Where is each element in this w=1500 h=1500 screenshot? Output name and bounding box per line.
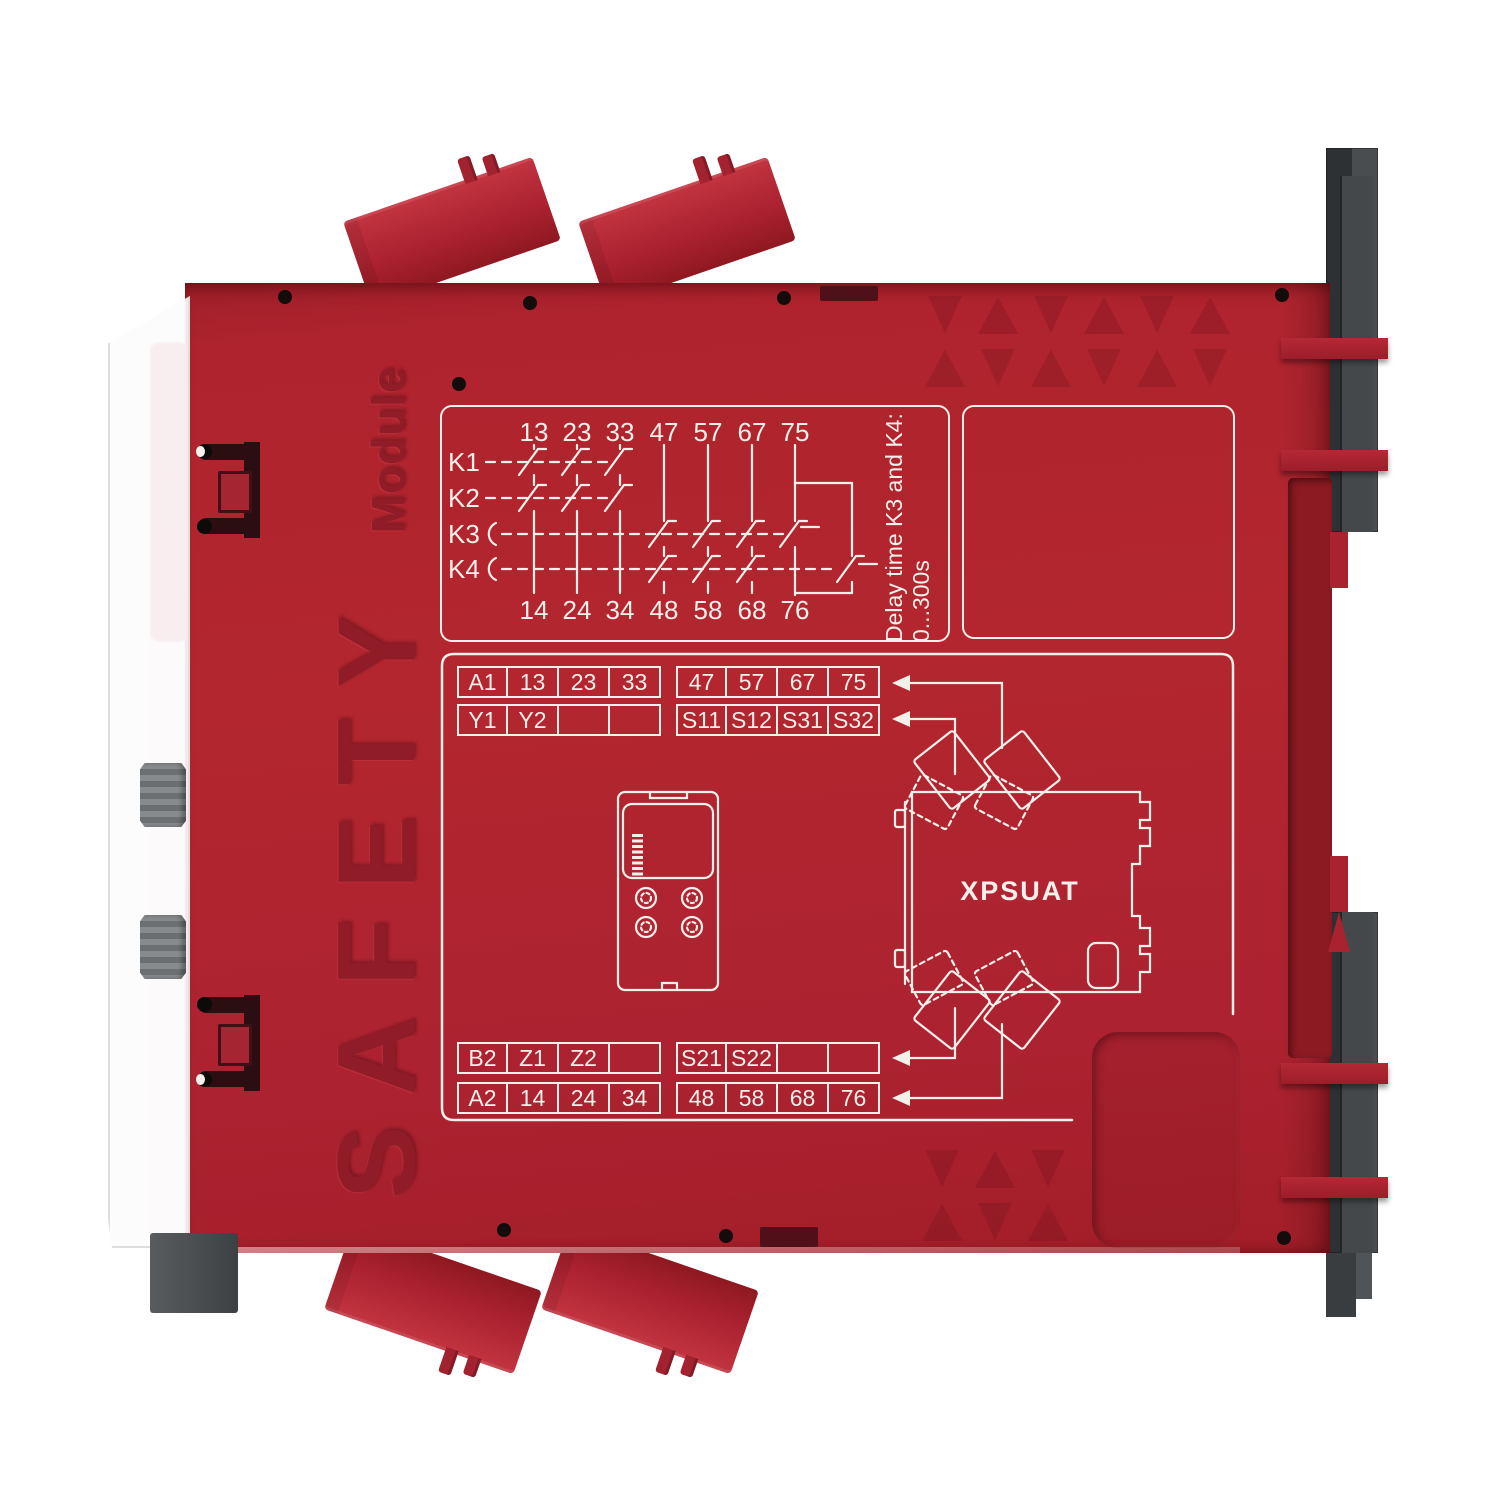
terminal-cell: [610, 1042, 661, 1074]
schematic-terminal: 57: [685, 419, 731, 445]
din-clip-foot-face: [1356, 1253, 1372, 1299]
latch-button: [218, 471, 252, 513]
terminal-cell: 75: [829, 666, 880, 698]
cover-latch: [198, 440, 262, 540]
table-row: S11 S12 S31 S32: [676, 704, 880, 736]
vent-slot: [820, 286, 878, 301]
table-row: B2 Z1 Z2: [457, 1042, 661, 1074]
screw-hole: [523, 296, 537, 310]
terminal-cell: Y1: [457, 704, 508, 736]
schematic-terminal: 13: [511, 419, 557, 445]
terminal-pin: [438, 1347, 459, 1376]
terminal-cell: Y2: [508, 704, 559, 736]
terminal-cell: 47: [676, 666, 727, 698]
latch-button: [218, 1024, 252, 1066]
terminal-cell: A2: [457, 1082, 508, 1114]
cover-latch: [198, 993, 262, 1093]
terminal-cell: 34: [610, 1082, 661, 1114]
terminal-table-bottom-right: S21 S22 48 58 68 76: [676, 1042, 880, 1114]
schematic-terminal: 23: [554, 419, 600, 445]
terminal-cell: 58: [727, 1082, 778, 1114]
embossed-module-text: Module: [361, 367, 415, 534]
clip-retainer-tab: [1281, 338, 1388, 359]
schematic-terminal: 34: [597, 597, 643, 623]
terminal-cell: [610, 704, 661, 736]
housing-step: [1330, 856, 1348, 912]
housing-step: [1330, 532, 1348, 588]
vent-slot: [760, 1227, 818, 1247]
terminal-pin: [680, 1355, 699, 1378]
relay-label: K2: [448, 485, 492, 511]
model-label: XPSUAT: [950, 876, 1090, 907]
gray-base-part: [150, 1233, 238, 1313]
delay-note-line1: Delay time K3 and K4:: [881, 404, 908, 642]
terminal-cell: A1: [457, 666, 508, 698]
schematic-terminal: 58: [685, 597, 731, 623]
delay-time-note: Delay time K3 and K4: 0...300s: [881, 404, 935, 642]
embossed-safety-text: SAFETY: [314, 585, 441, 1199]
schematic-terminal: 68: [729, 597, 775, 623]
terminal-table-top-right: 47 57 67 75 S11 S12 S31 S32: [676, 666, 880, 736]
schematic-terminal: 67: [729, 419, 775, 445]
terminal-cell: Z2: [559, 1042, 610, 1074]
clip-retainer-tab: [1281, 450, 1388, 471]
terminal-cell: [778, 1042, 829, 1074]
terminal-pin: [463, 1355, 482, 1378]
schematic-terminal: 76: [772, 597, 818, 623]
terminal-pin: [482, 153, 501, 176]
terminal-cell: 48: [676, 1082, 727, 1114]
blank-label-box: [962, 405, 1235, 639]
terminal-cell: 67: [778, 666, 829, 698]
terminal-pin: [655, 1347, 676, 1376]
table-row: S21 S22: [676, 1042, 880, 1074]
screw-hole: [452, 377, 466, 391]
table-row: Y1 Y2: [457, 704, 661, 736]
terminal-cell: [829, 1042, 880, 1074]
schematic-terminal: 48: [641, 597, 687, 623]
terminal-cell: S11: [676, 704, 727, 736]
terminal-cell: 57: [727, 666, 778, 698]
terminal-cell: 33: [610, 666, 661, 698]
adjustment-knob: [140, 915, 186, 979]
terminal-pin: [717, 153, 736, 176]
terminal-cell: 13: [508, 666, 559, 698]
terminal-cell: S32: [829, 704, 880, 736]
schematic-terminal: 14: [511, 597, 557, 623]
screw-hole: [278, 290, 292, 304]
relay-label: K4: [448, 556, 492, 582]
safety-relay-product-photo: SAFETY Module K1: [0, 0, 1500, 1500]
screw-hole: [497, 1223, 511, 1237]
adjustment-knob: [140, 763, 186, 827]
din-clip-foot: [1326, 1253, 1356, 1317]
screw-hole: [1277, 1231, 1291, 1245]
terminal-table-bottom-left: B2 Z1 Z2 A2 14 24 34: [457, 1042, 661, 1114]
screw-hole: [719, 1229, 733, 1243]
delay-note-line2: 0...300s: [908, 404, 935, 642]
table-row: 48 58 68 76: [676, 1082, 880, 1114]
terminal-cell: B2: [457, 1042, 508, 1074]
terminal-cell: 68: [778, 1082, 829, 1114]
terminal-cell: S31: [778, 704, 829, 736]
screw-hole: [777, 291, 791, 305]
terminal-table-top-left: A1 13 23 33 Y1 Y2: [457, 666, 661, 736]
relay-label: K3: [448, 521, 492, 547]
terminal-cell: 23: [559, 666, 610, 698]
screw-hole: [1275, 288, 1289, 302]
relay-label: K1: [448, 449, 492, 475]
table-row: A1 13 23 33: [457, 666, 661, 698]
table-row: A2 14 24 34: [457, 1082, 661, 1114]
terminal-cell: 76: [829, 1082, 880, 1114]
terminal-cell: 14: [508, 1082, 559, 1114]
clip-retainer-tab: [1281, 1063, 1388, 1084]
terminal-cell: S21: [676, 1042, 727, 1074]
terminal-pin: [457, 155, 478, 184]
schematic-terminal: 24: [554, 597, 600, 623]
terminal-cell: S12: [727, 704, 778, 736]
schematic-terminal: 33: [597, 419, 643, 445]
housing-bottom-edge-highlight: [185, 1247, 1240, 1253]
housing-right-recess: [1288, 478, 1332, 1058]
table-row: 47 57 67 75: [676, 666, 880, 698]
terminal-cell: 24: [559, 1082, 610, 1114]
terminal-pin: [692, 155, 713, 184]
schematic-terminal: 75: [772, 419, 818, 445]
terminal-cell: S22: [727, 1042, 778, 1074]
terminal-cell: [559, 704, 610, 736]
terminal-cell: Z1: [508, 1042, 559, 1074]
schematic-terminal: 47: [641, 419, 687, 445]
clip-retainer-tab: [1281, 1177, 1388, 1198]
